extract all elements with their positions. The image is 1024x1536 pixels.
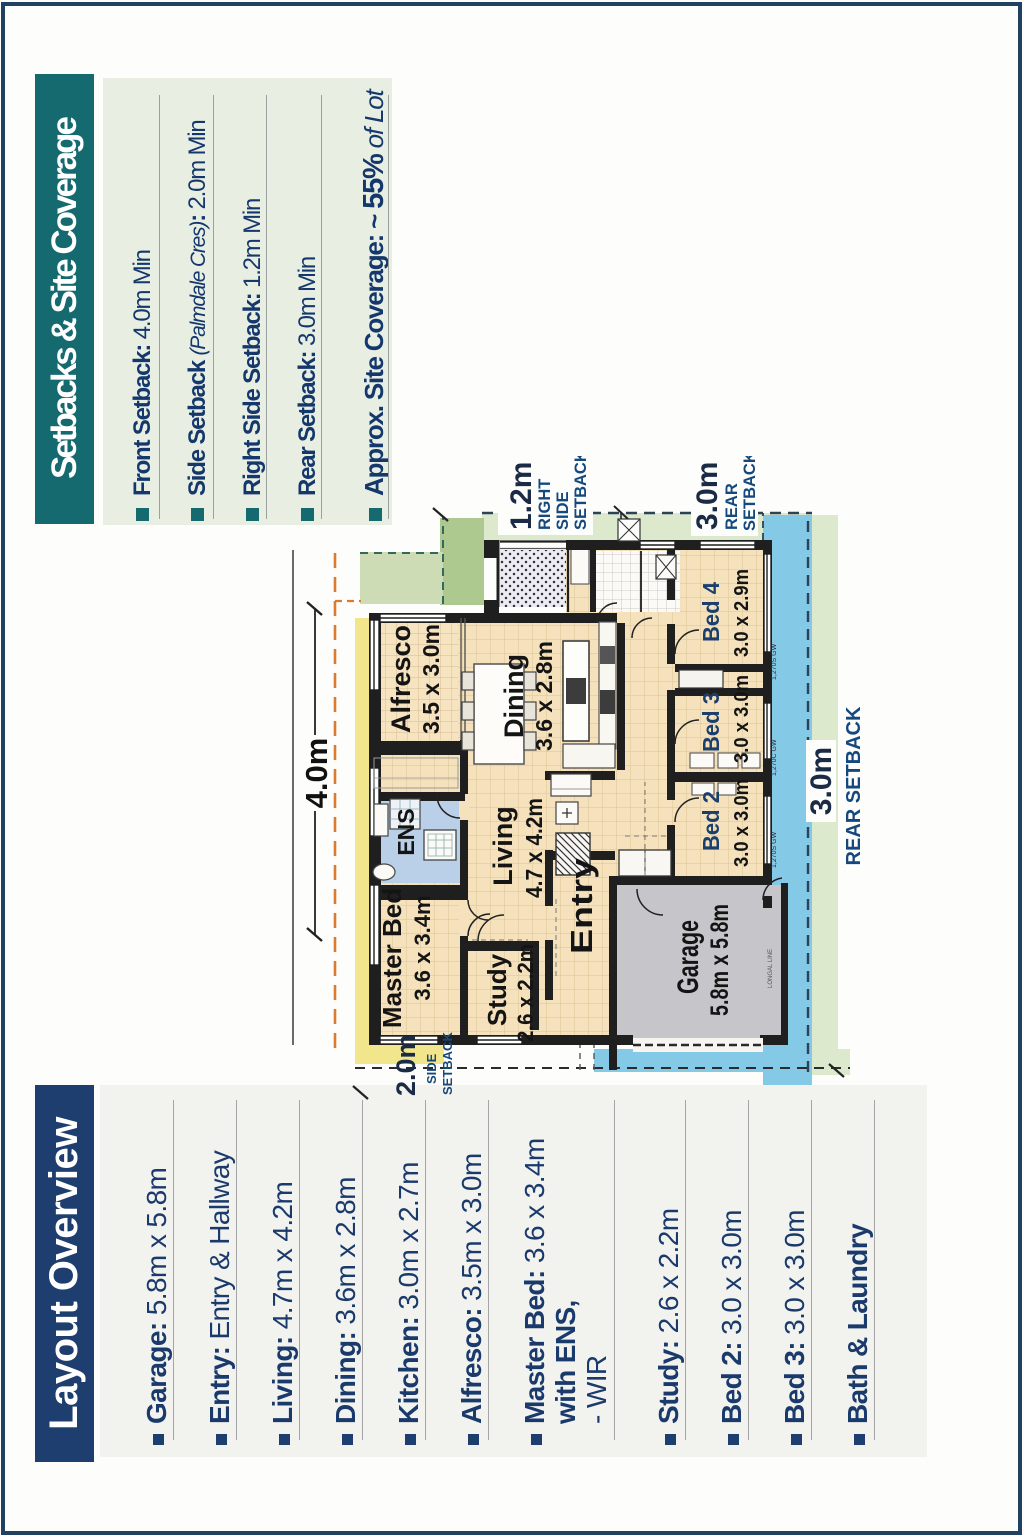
svg-text:SETBACK: SETBACK [572, 456, 590, 530]
svg-text:SETBACK: SETBACK [440, 1032, 455, 1095]
svg-text:RIGHT: RIGHT [536, 479, 554, 530]
svg-text:Living: Living [488, 806, 518, 886]
svg-text:3.6 x 3.4m: 3.6 x 3.4m [410, 895, 435, 1000]
svg-text:ENS: ENS [393, 808, 419, 855]
svg-text:4.7 x 4.2m: 4.7 x 4.2m [521, 798, 547, 898]
svg-text:1,270S GW: 1,270S GW [771, 831, 778, 868]
svg-text:Bed 2: Bed 2 [698, 791, 724, 851]
svg-text:Study: Study [482, 953, 512, 1026]
svg-text:5.8m x 5.8m: 5.8m x 5.8m [706, 904, 734, 1016]
svg-text:3.0 x 3.0m: 3.0 x 3.0m [731, 675, 753, 763]
svg-text:2.6 x 2.2m: 2.6 x 2.2m [513, 944, 538, 1042]
svg-text:LONGAL LINE: LONGAL LINE [768, 949, 774, 988]
svg-text:SIDE: SIDE [554, 491, 572, 530]
svg-text:REAR: REAR [723, 483, 741, 530]
svg-text:1.2m: 1.2m [505, 462, 538, 530]
svg-text:Bed 3: Bed 3 [698, 692, 724, 752]
svg-text:2.0m: 2.0m [391, 1034, 421, 1096]
svg-text:REAR SETBACK: REAR SETBACK [843, 706, 865, 865]
svg-text:SETBACK: SETBACK [741, 456, 759, 531]
svg-text:3.0m: 3.0m [805, 747, 838, 815]
svg-text:Alfresco: Alfresco [386, 625, 416, 733]
svg-text:Dining: Dining [499, 654, 529, 738]
svg-text:1,270S GW: 1,270S GW [771, 643, 778, 680]
svg-text:4.0m: 4.0m [299, 738, 334, 809]
svg-text:3.6 x 2.8m: 3.6 x 2.8m [531, 641, 557, 751]
svg-text:Master Bed: Master Bed [377, 888, 407, 1028]
svg-text:1,270C GW: 1,270C GW [771, 739, 778, 776]
svg-text:Garage: Garage [672, 920, 705, 994]
svg-text:Bed 4: Bed 4 [698, 582, 724, 642]
svg-text:SIDE: SIDE [424, 1053, 439, 1084]
svg-text:3.5 x 3.0m: 3.5 x 3.0m [418, 624, 444, 734]
svg-text:Entry: Entry [564, 857, 599, 954]
svg-text:3.0 x 2.9m: 3.0 x 2.9m [731, 569, 753, 657]
svg-text:3.0m: 3.0m [691, 462, 724, 530]
svg-text:3.0 x 3.0m: 3.0 x 3.0m [731, 779, 753, 867]
